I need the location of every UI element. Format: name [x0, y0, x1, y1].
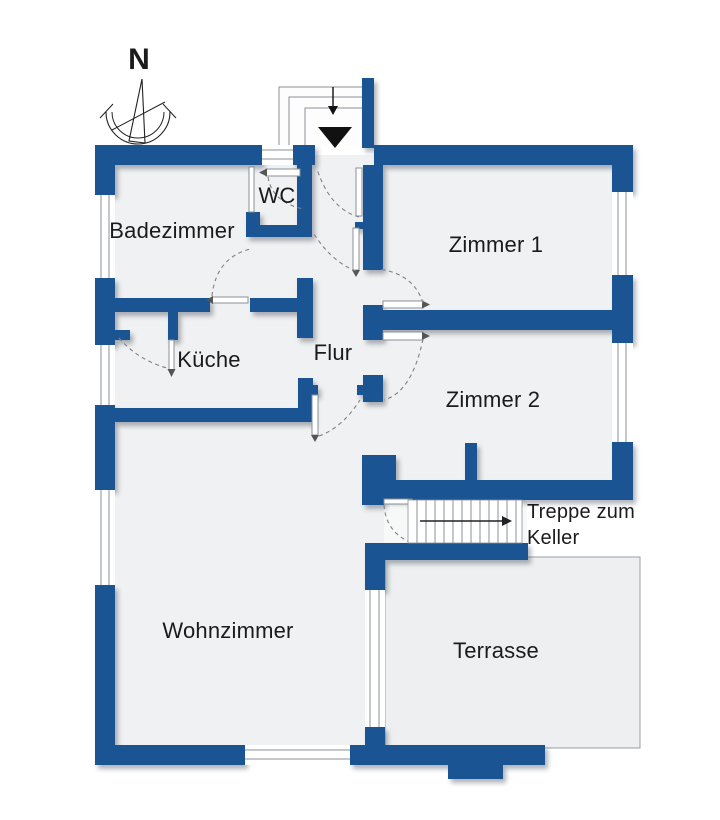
room-label-terrasse: Terrasse [453, 638, 539, 664]
wall-segment [113, 330, 130, 340]
window [95, 490, 115, 585]
wall-segment [378, 543, 528, 560]
entrance-steps [279, 85, 374, 150]
stairs-label-line1: Treppe zum [527, 499, 635, 525]
wall-segment [297, 278, 313, 338]
window [95, 345, 115, 405]
window [245, 745, 350, 765]
room-label-flur: Flur [314, 340, 353, 366]
wall-segment [465, 443, 477, 480]
wall-segment [95, 278, 115, 345]
stairs-label: Treppe zum Keller [527, 499, 635, 551]
compass-icon [100, 79, 176, 144]
room-label-wc: WC [258, 183, 295, 209]
wall-segment [293, 145, 315, 165]
wall-segment [374, 145, 633, 165]
wall-segment [365, 727, 385, 765]
wall-segment [362, 78, 374, 148]
room-label-kueche: Küche [177, 347, 240, 373]
compass-n-label: N [128, 43, 150, 77]
stairs-icon [408, 500, 522, 543]
wall-segment [448, 765, 503, 779]
wall-segment [363, 305, 383, 340]
window [365, 590, 385, 727]
stairs-label-line2: Keller [527, 525, 635, 551]
floorplan-drawing [0, 0, 720, 820]
wall-segment [246, 225, 312, 237]
wall-segment [168, 312, 178, 340]
room-label-badezimmer: Badezimmer [109, 218, 234, 244]
wall-segment [95, 585, 115, 765]
wall-segment [612, 275, 633, 343]
wall-segment [365, 543, 385, 590]
wall-segment [363, 375, 383, 402]
window [262, 145, 293, 165]
wall-segment [363, 165, 383, 270]
wall-segment [313, 385, 318, 395]
wall-segment [113, 408, 307, 422]
room-label-zimmer1: Zimmer 1 [449, 232, 544, 258]
floorplan-page: N WC Badezimmer Zimmer 1 Küche Flur Zimm… [0, 0, 720, 820]
wall-segment [357, 385, 363, 395]
wall-segment [378, 480, 632, 500]
wall-segment [95, 145, 262, 165]
window [612, 192, 633, 275]
wall-segment [384, 455, 396, 482]
wall-segment [612, 145, 633, 192]
wall-segment [95, 145, 115, 195]
wall-segment [250, 298, 302, 312]
room-label-wohnzimmer: Wohnzimmer [162, 618, 293, 644]
wall-segment [113, 298, 210, 312]
wall-segment [383, 310, 612, 330]
window [612, 343, 633, 442]
wall-segment [95, 745, 245, 765]
wall-segment [95, 405, 115, 490]
wall-segment [298, 378, 313, 422]
room-label-zimmer2: Zimmer 2 [446, 387, 541, 413]
